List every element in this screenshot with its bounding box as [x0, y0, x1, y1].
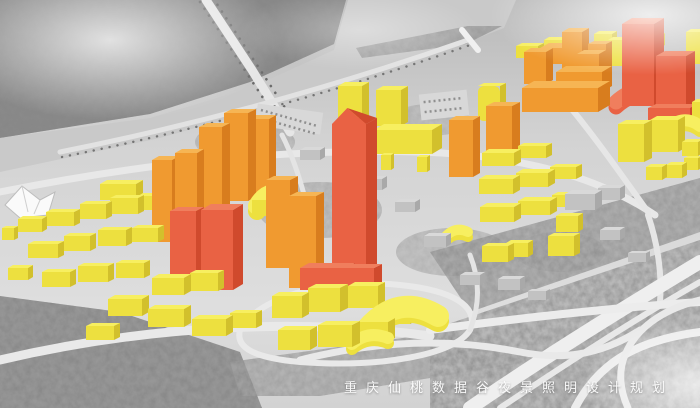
yellow-building — [318, 321, 360, 347]
gray-building — [300, 147, 325, 160]
yellow-building — [548, 233, 580, 256]
yellow-building — [682, 139, 700, 156]
gray-building — [395, 199, 420, 212]
masterplan-render: 重庆仙桃数据谷夜景照明设计规划 — [0, 0, 700, 408]
yellow-building — [116, 260, 150, 278]
yellow-building — [2, 226, 18, 240]
scene-canvas — [0, 0, 700, 408]
gray-building — [424, 233, 451, 247]
yellow-building — [381, 153, 394, 170]
yellow-building — [78, 263, 114, 282]
yellow-building — [98, 227, 132, 246]
orange-building — [522, 81, 610, 112]
yellow-building — [148, 305, 191, 327]
yellow-building — [518, 197, 557, 215]
yellow-building — [646, 164, 667, 180]
yellow-building — [42, 269, 76, 287]
yellow-building — [190, 270, 224, 291]
yellow-building — [46, 209, 80, 226]
yellow-building — [80, 201, 112, 219]
yellow-building — [110, 195, 144, 214]
yellow-building — [518, 143, 552, 158]
yellow-building — [152, 274, 191, 295]
yellow-building — [86, 323, 120, 340]
yellow-building — [516, 169, 555, 187]
yellow-building — [650, 116, 685, 152]
yellow-building — [618, 120, 652, 162]
yellow-building — [28, 241, 64, 258]
parking-lot — [419, 90, 469, 121]
yellow-building — [192, 315, 233, 336]
yellow-building — [132, 225, 164, 242]
gray-building — [460, 272, 485, 285]
gray-building — [600, 227, 625, 240]
yellow-building — [8, 265, 33, 280]
yellow-building — [482, 149, 521, 166]
gray-building — [628, 251, 650, 262]
yellow-building — [374, 124, 442, 154]
yellow-building — [230, 310, 262, 328]
yellow-building — [64, 233, 96, 251]
yellow-building — [482, 243, 514, 262]
gray-building — [598, 185, 625, 200]
yellow-building — [278, 326, 317, 350]
yellow-building — [308, 284, 348, 312]
gray-building — [528, 289, 550, 300]
gray-building — [565, 190, 602, 210]
gray-building — [498, 276, 525, 290]
orange-building — [449, 116, 480, 177]
yellow-building — [417, 155, 430, 172]
yellow-building — [479, 175, 520, 194]
yellow-building — [480, 203, 521, 222]
yellow-building — [108, 295, 149, 316]
yellow-building — [272, 292, 309, 318]
red-building — [332, 108, 377, 272]
yellow-building — [376, 86, 408, 126]
yellow-building — [18, 216, 47, 232]
yellow-building — [666, 162, 687, 178]
yellow-building — [556, 213, 583, 232]
